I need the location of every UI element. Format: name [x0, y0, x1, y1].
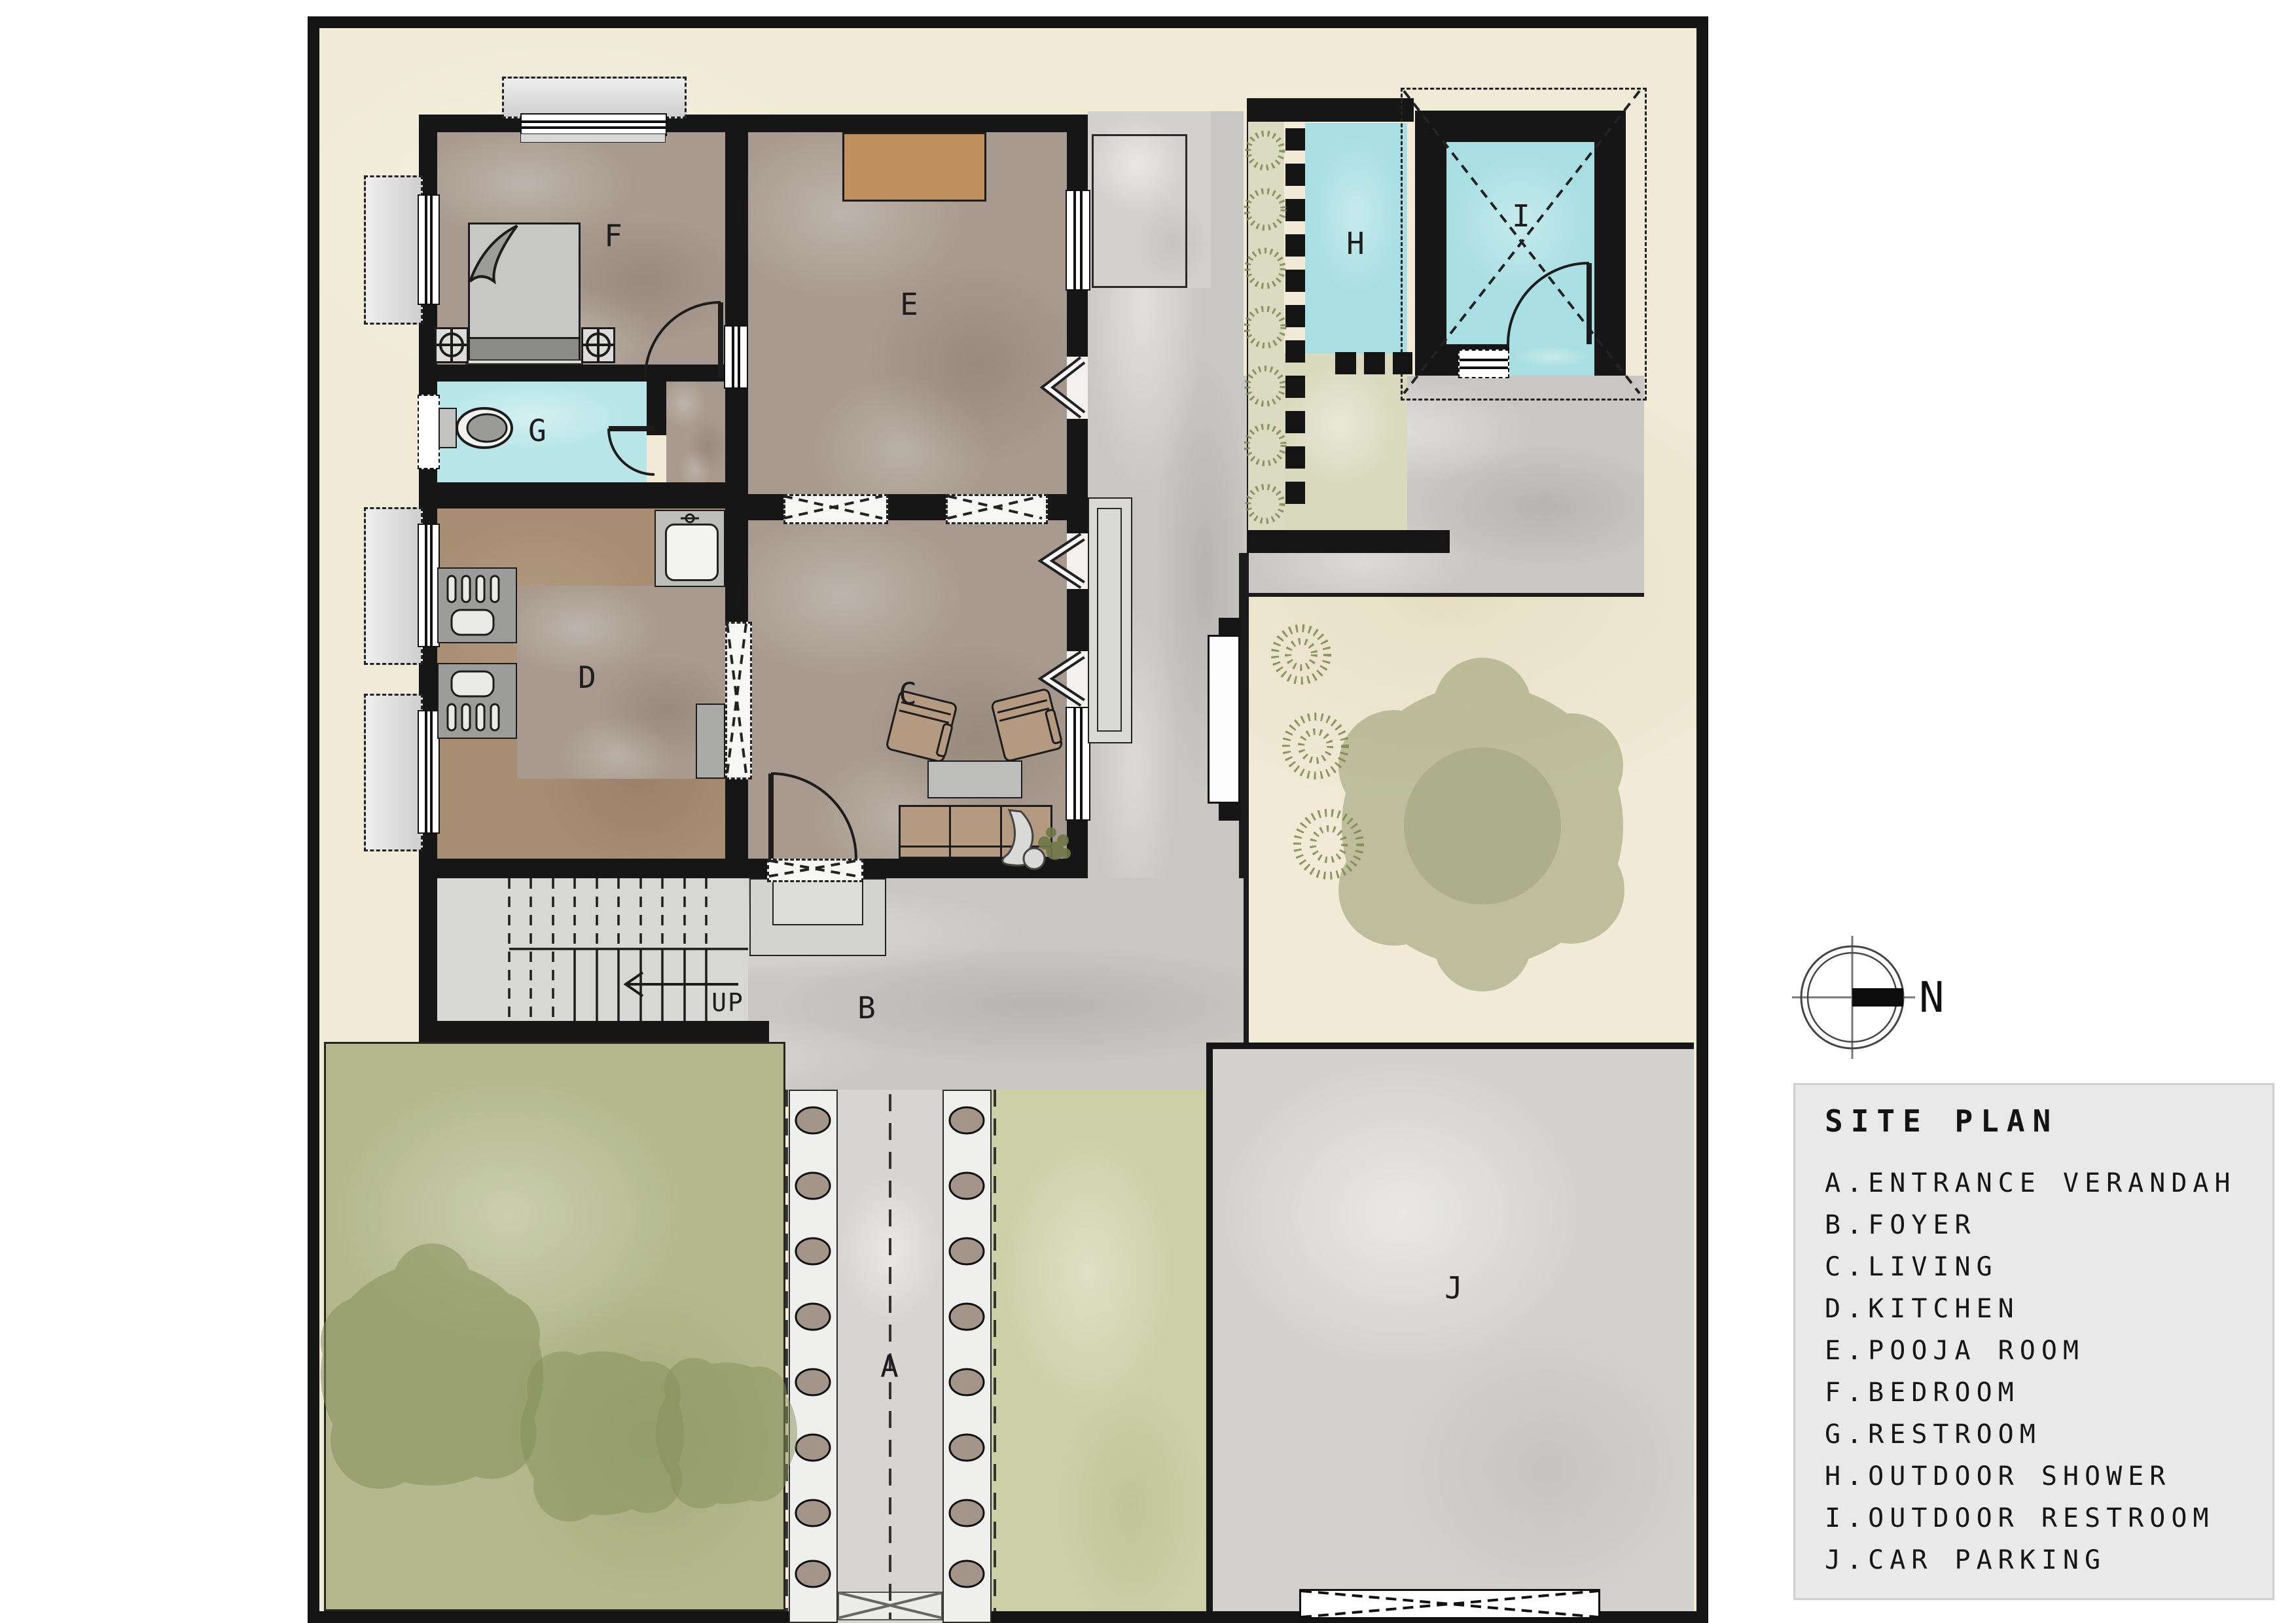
legend-item: B.FOYER: [1825, 1204, 2236, 1246]
room-label-bedroom: F: [604, 218, 624, 253]
garden-tree: [1338, 658, 1624, 991]
legend-item: J.CAR PARKING: [1825, 1539, 2236, 1581]
north-label: N: [1919, 974, 1945, 1022]
stair-up-label: UP: [711, 988, 744, 1017]
shower-shrubs: [1247, 134, 1283, 521]
legend-panel: SITE PLAN A.ENTRANCE VERANDAH B.FOYER C.…: [1793, 1083, 2274, 1600]
legend-item: C.LIVING: [1825, 1246, 2236, 1288]
bed-blanket-fold: [470, 226, 517, 281]
room-label-entrance-verandah: A: [880, 1349, 900, 1384]
legend-item: E.POOJA ROOM: [1825, 1330, 2236, 1372]
room-label-outdoor-shower: H: [1346, 226, 1366, 261]
gate-cross: [1301, 1591, 1598, 1617]
room-label-car-parking: J: [1444, 1270, 1464, 1306]
room-label-living: C: [899, 676, 918, 711]
legend-item: G.RESTROOM: [1825, 1414, 2236, 1455]
toilet-bowl: [457, 408, 512, 448]
room-label-foyer: B: [857, 990, 877, 1026]
sofa-person: [1003, 810, 1045, 869]
hob-burners: [448, 576, 499, 730]
casement-chevrons: [1046, 360, 1083, 703]
legend-title: SITE PLAN: [1825, 1103, 2058, 1139]
legend-item: A.ENTRANCE VERANDAH: [1825, 1162, 2236, 1204]
room-label-pooja: E: [900, 287, 920, 322]
room-label-restroom: G: [528, 413, 548, 448]
legend-item: I.OUTDOOR RESTROOM: [1825, 1497, 2236, 1539]
legend-item: H.OUTDOOR SHOWER: [1825, 1455, 2236, 1497]
room-label-outdoor-restroom: I: [1512, 198, 1532, 234]
walkway-columns: [796, 1107, 984, 1587]
room-label-kitchen: D: [578, 660, 598, 695]
lawn-trees: [321, 1243, 797, 1522]
north-compass: [1792, 936, 1915, 1059]
legend-item: F.BEDROOM: [1825, 1372, 2236, 1414]
legend-list: A.ENTRANCE VERANDAH B.FOYER C.LIVING D.K…: [1825, 1162, 2236, 1581]
sink-faucet: [681, 514, 699, 522]
nightstand-lamps: [435, 329, 615, 361]
pergola-beams: [1285, 128, 1412, 504]
site-plan-sheet: F E G D C B A H I J UP N SITE PLAN A.ENT…: [0, 0, 2296, 1623]
legend-item: D.KITCHEN: [1825, 1288, 2236, 1330]
